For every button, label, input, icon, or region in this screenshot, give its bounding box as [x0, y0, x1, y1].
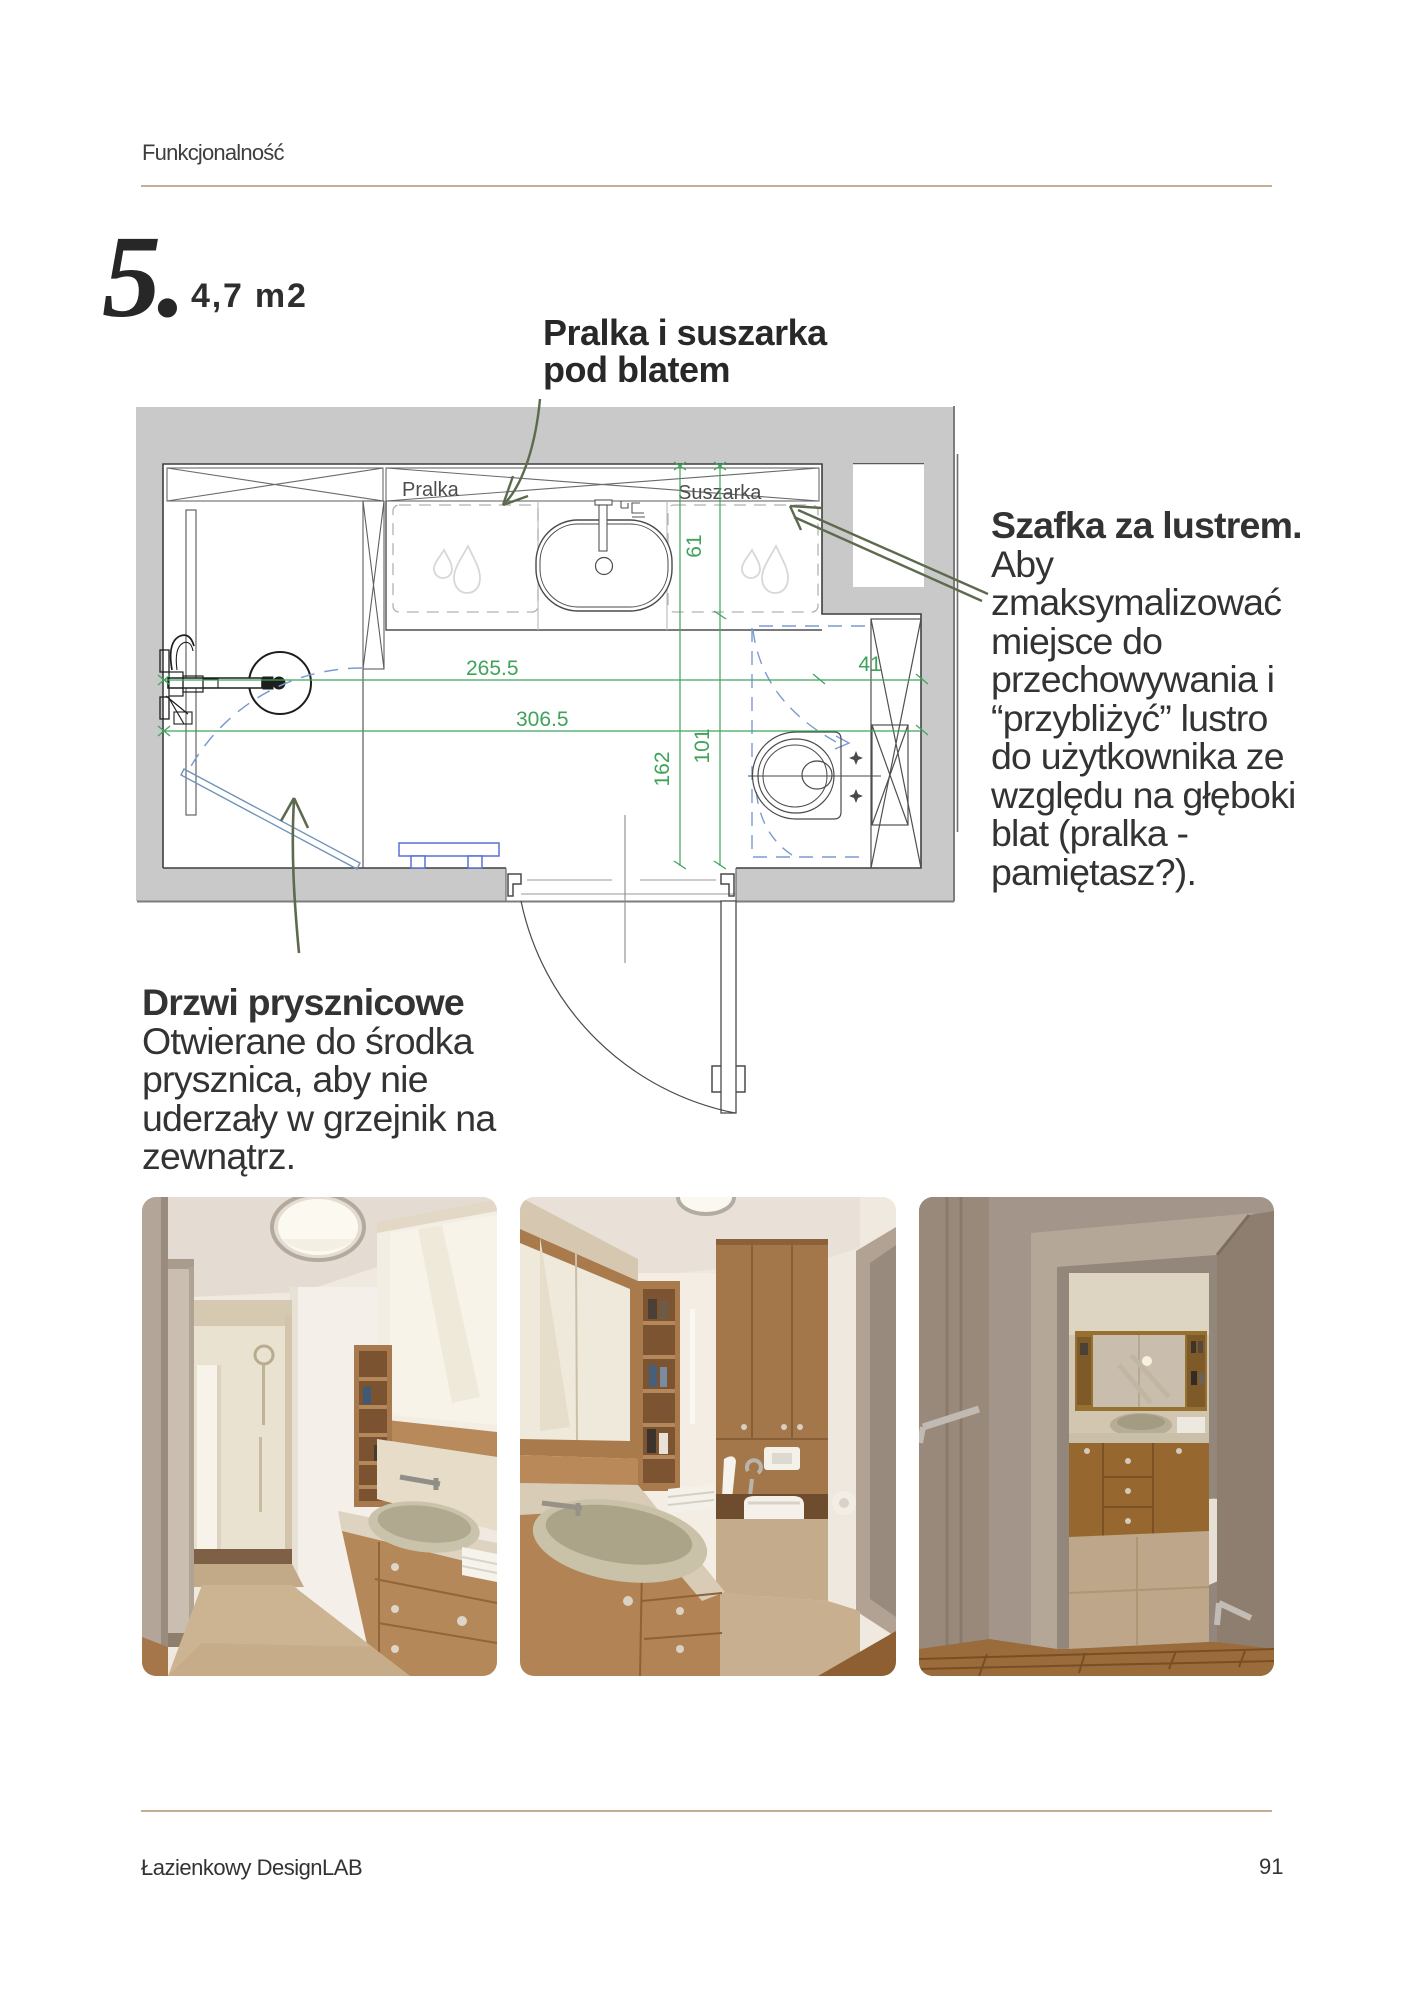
svg-text:61: 61: [683, 534, 706, 557]
svg-text:162: 162: [651, 751, 674, 786]
svg-text:265.5: 265.5: [466, 657, 519, 680]
svg-text:41: 41: [858, 653, 881, 676]
svg-text:306.5: 306.5: [516, 708, 569, 731]
svg-text:Pralka: Pralka: [402, 479, 460, 501]
svg-text:101: 101: [691, 728, 714, 763]
